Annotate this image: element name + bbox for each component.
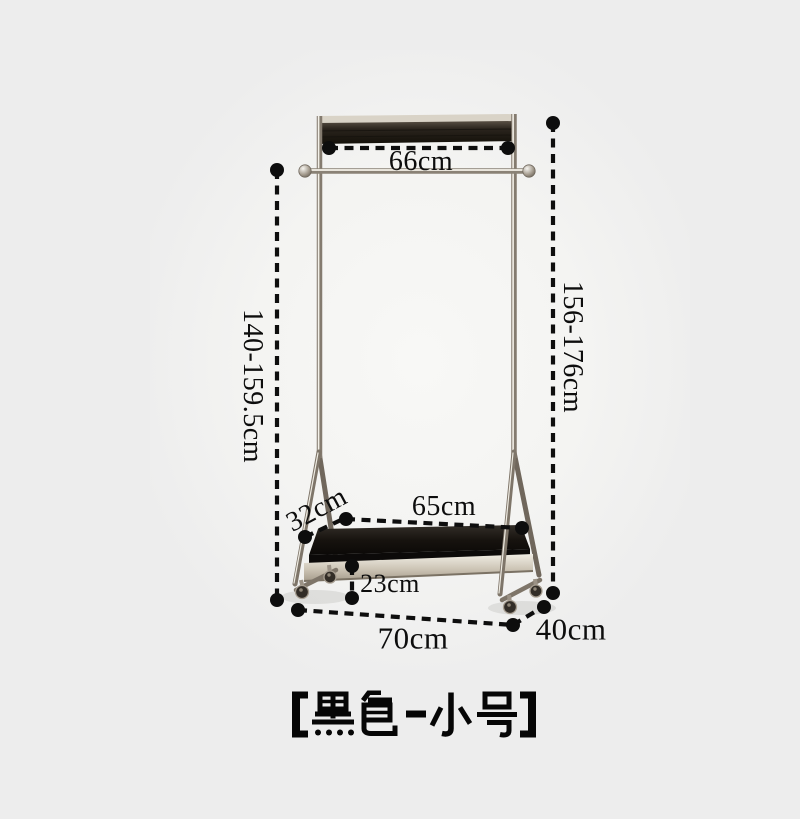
dim-label-rod-height: 140-159.5cm — [238, 309, 266, 463]
dim-label-tray-width: 65cm — [412, 493, 476, 521]
dim-label-base-width: 70cm — [378, 623, 449, 654]
product-dimension-figure: 66cm 140-159.5cm 156-176cm 65cm 32cm 23c… — [0, 0, 800, 800]
rod-ball-left — [299, 165, 311, 177]
rack-top-board — [317, 114, 515, 144]
dim-label-base-depth: 40cm — [536, 614, 607, 645]
rod-ball-right — [523, 165, 535, 177]
dim-label-total-height: 156-176cm — [558, 281, 586, 413]
dim-label-tray-height: 23cm — [360, 571, 420, 597]
variant-caption: 【黑色-小号】 — [286, 691, 542, 744]
garment-rack-illustration — [0, 0, 800, 800]
dim-label-top-width: 66cm — [389, 148, 453, 176]
